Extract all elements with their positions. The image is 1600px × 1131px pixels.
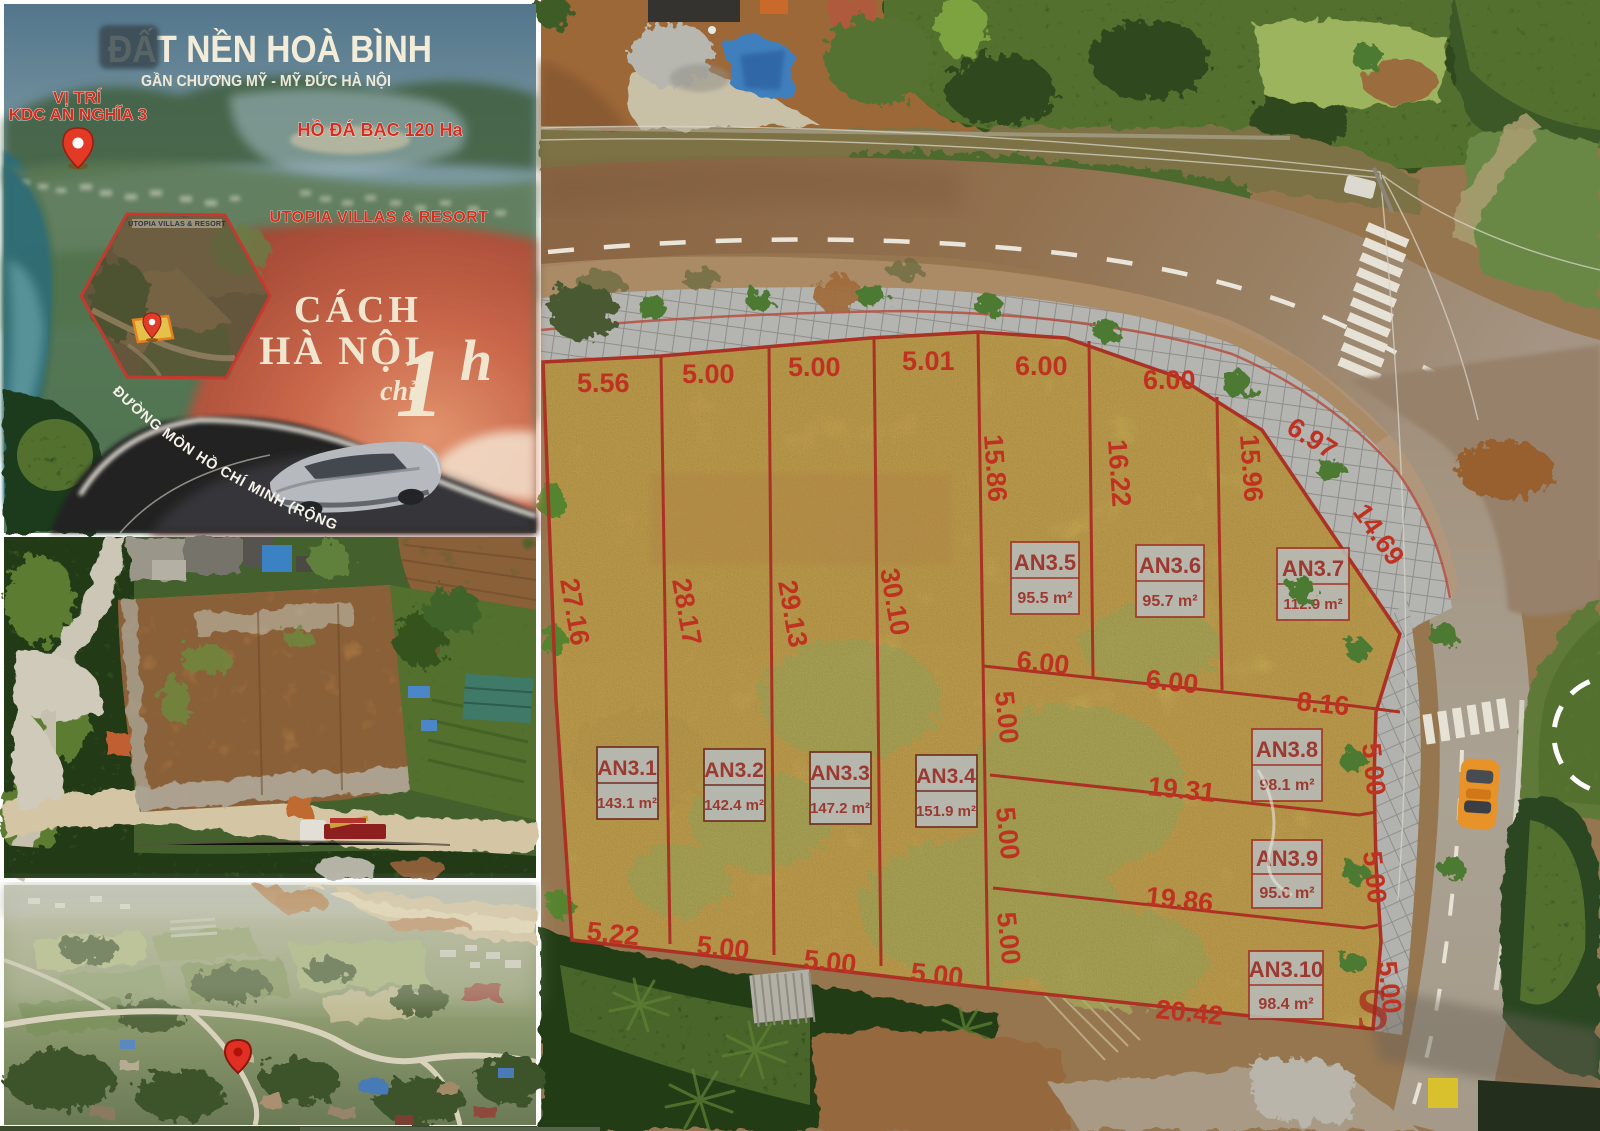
svg-text:8.16: 8.16 (1295, 686, 1350, 721)
svg-text:CÁCH: CÁCH (294, 289, 422, 331)
svg-text:16.22: 16.22 (1102, 438, 1137, 508)
svg-text:147.2 m²: 147.2 m² (810, 800, 870, 817)
svg-text:AN3.5: AN3.5 (1014, 550, 1076, 575)
svg-text:AN3.8: AN3.8 (1256, 737, 1318, 762)
svg-text:142.4 m²: 142.4 m² (704, 797, 764, 814)
svg-text:KDC AN NGHĨA 3: KDC AN NGHĨA 3 (9, 104, 148, 124)
svg-text:S: S (1356, 977, 1389, 1043)
svg-text:AN3.1: AN3.1 (597, 757, 657, 780)
svg-text:5.00: 5.00 (682, 359, 735, 389)
svg-text:AN3.6: AN3.6 (1139, 553, 1201, 578)
svg-text:5.00: 5.00 (802, 944, 857, 979)
svg-text:AN3.9: AN3.9 (1256, 846, 1318, 871)
svg-text:5.22: 5.22 (585, 916, 640, 951)
svg-text:98.4 m²: 98.4 m² (1258, 996, 1313, 1013)
svg-text:143.1 m²: 143.1 m² (597, 795, 657, 812)
svg-text:151.9 m²: 151.9 m² (916, 803, 976, 820)
svg-text:GẦN CHƯƠNG MỸ - MỸ ĐỨC HÀ NỘI: GẦN CHƯƠNG MỸ - MỸ ĐỨC HÀ NỘI (141, 70, 391, 90)
svg-text:AN3.4: AN3.4 (916, 765, 976, 788)
svg-text:HỒ ĐÁ BẠC 120 Ha: HỒ ĐÁ BẠC 120 Ha (297, 119, 463, 140)
svg-text:5.01: 5.01 (902, 346, 955, 376)
svg-text:5.00: 5.00 (695, 930, 750, 965)
svg-text:h: h (460, 328, 492, 393)
svg-text:AN3.2: AN3.2 (704, 759, 764, 782)
svg-text:5.00: 5.00 (991, 910, 1026, 965)
svg-text:UTOPIA VILLAS & RESORT: UTOPIA VILLAS & RESORT (128, 219, 226, 228)
svg-text:6.00: 6.00 (1144, 664, 1199, 699)
svg-text:6.00: 6.00 (1143, 365, 1196, 395)
svg-text:AN3.10: AN3.10 (1249, 957, 1324, 982)
svg-text:15.96: 15.96 (1234, 433, 1269, 503)
svg-text:AN3.3: AN3.3 (810, 762, 870, 785)
svg-text:5.00: 5.00 (990, 805, 1025, 860)
svg-text:5.00: 5.00 (788, 352, 841, 382)
svg-text:5.00: 5.00 (1356, 741, 1391, 796)
svg-text:95.5 m²: 95.5 m² (1017, 590, 1072, 607)
svg-text:5.00: 5.00 (989, 689, 1024, 744)
svg-text:1: 1 (396, 330, 445, 438)
svg-text:UTOPIA VILLAS & RESORT: UTOPIA VILLAS & RESORT (269, 209, 488, 226)
svg-text:6.00: 6.00 (1015, 351, 1068, 381)
svg-text:95.7 m²: 95.7 m² (1142, 593, 1197, 610)
svg-text:AN3.7: AN3.7 (1282, 556, 1344, 581)
svg-text:6.00: 6.00 (1015, 645, 1070, 680)
svg-text:5.00: 5.00 (909, 957, 964, 992)
svg-text:15.86: 15.86 (978, 433, 1013, 503)
svg-text:5.56: 5.56 (577, 368, 630, 398)
